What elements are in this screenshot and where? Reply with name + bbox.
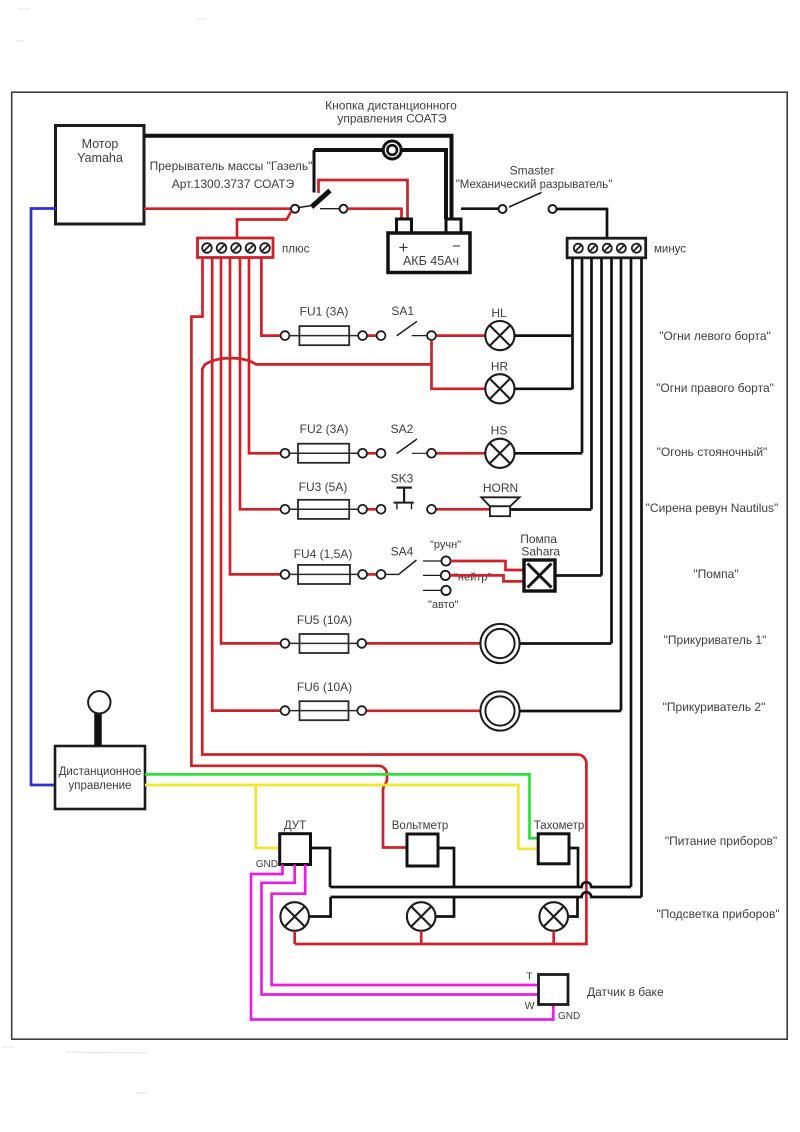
svg-text:HL: HL (491, 306, 507, 320)
svg-text:SA2: SA2 (391, 422, 414, 436)
svg-text:Тахометр: Тахометр (534, 820, 585, 832)
svg-text:"Прикуриватель 2": "Прикуриватель 2" (663, 700, 766, 714)
svg-text:"Помпа": "Помпа" (693, 567, 738, 581)
svg-text:−: − (452, 238, 461, 255)
svg-text:FU6 (10А): FU6 (10А) (297, 680, 352, 694)
svg-text:Дистанционное: Дистанционное (59, 766, 142, 778)
svg-text:Мотор: Мотор (82, 137, 119, 151)
svg-text:"ручн": "ручн" (430, 539, 461, 551)
svg-text:FU3 (5А): FU3 (5А) (299, 480, 348, 494)
svg-text:"Прикуриватель 1": "Прикуриватель 1" (664, 633, 767, 647)
svg-text:Smaster: Smaster (510, 164, 555, 178)
svg-text:Арт.1300.3737 СОАТЭ: Арт.1300.3737 СОАТЭ (172, 177, 295, 191)
svg-text:"Сирена ревун Nautilus": "Сирена ревун Nautilus" (646, 501, 779, 515)
svg-text:плюс: плюс (282, 244, 310, 256)
svg-text:T: T (526, 971, 533, 983)
svg-text:управления СОАТЭ: управления СОАТЭ (337, 112, 447, 126)
svg-text:FU1 (3А): FU1 (3А) (300, 305, 349, 319)
svg-text:"Огонь стояночный": "Огонь стояночный" (657, 445, 768, 459)
svg-text:"Механический разрыватель": "Механический разрыватель" (456, 179, 613, 191)
svg-text:минус: минус (654, 244, 686, 256)
svg-text:HORN: HORN (483, 481, 518, 495)
svg-text:"нейтр": "нейтр" (454, 572, 491, 584)
svg-text:АКБ 45Ач: АКБ 45Ач (403, 254, 459, 268)
svg-text:FU5 (10А): FU5 (10А) (297, 613, 352, 627)
svg-text:GND: GND (256, 859, 278, 870)
svg-text:HR: HR (491, 360, 509, 374)
svg-text:FU2 (3А): FU2 (3А) (300, 422, 349, 436)
svg-text:FU4 (1,5А): FU4 (1,5А) (294, 547, 353, 561)
svg-text:управление: управление (69, 780, 132, 792)
svg-text:"Огни левого борта": "Огни левого борта" (659, 329, 771, 343)
svg-text:SA4: SA4 (391, 545, 414, 559)
svg-text:SA1: SA1 (391, 304, 414, 318)
svg-text:"Питание приборов": "Питание приборов" (665, 834, 777, 848)
svg-text:SK3: SK3 (391, 472, 414, 486)
svg-text:Вольтметр: Вольтметр (392, 820, 448, 832)
svg-text:"Огни правого борта": "Огни правого борта" (656, 381, 774, 395)
svg-text:"Подсветка приборов": "Подсветка приборов" (656, 907, 779, 921)
svg-text:Прерыватель массы "Газель": Прерыватель массы "Газель" (150, 159, 313, 173)
svg-text:HS: HS (491, 424, 508, 438)
svg-text:Sahara: Sahara (521, 545, 560, 559)
svg-text:W: W (525, 1000, 535, 1012)
svg-text:GND: GND (558, 1011, 580, 1022)
svg-text:Yamaha: Yamaha (77, 151, 123, 165)
svg-text:Датчик в баке: Датчик в баке (587, 985, 664, 999)
svg-text:"авто": "авто" (428, 599, 459, 611)
svg-text:ДУТ: ДУТ (284, 820, 306, 832)
svg-text:Кнопка дистанционного: Кнопка дистанционного (325, 99, 457, 113)
